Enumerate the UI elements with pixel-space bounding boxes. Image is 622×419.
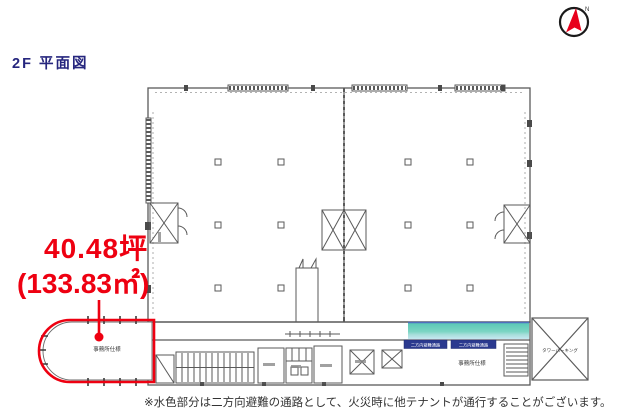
tower-parking: タワーパーキング [532, 318, 588, 380]
interior-window-lines [153, 93, 525, 317]
corridor-badge-label: 二方向避難通路 [411, 342, 441, 349]
area-tsubo-label: 40.48坪 [44, 227, 148, 267]
parking-label: タワーパーキング [542, 347, 578, 354]
evacuation-corridor-highlight [408, 323, 529, 340]
floorplan-page: 2F 平面図 N [0, 0, 622, 419]
stairs-main [176, 352, 254, 383]
right-unit-label: 事務所仕様 [458, 359, 486, 367]
area-sqm-label: (133.83㎡) [17, 262, 149, 302]
corridor-badges: 二方向避難通路 二方向避難通路 [404, 340, 496, 349]
compass-n-label: N [585, 7, 589, 13]
left-unit-label: 事務所仕様 [93, 345, 121, 353]
vestibule [296, 259, 318, 322]
corridor-badge-label: 二方向避難通路 [459, 342, 489, 349]
left-elevator-shaft [150, 203, 187, 243]
stairs-right [504, 344, 528, 376]
footnote: ※水色部分は二方向避難の通路として、火災時に他テナントが通行することがございます… [144, 394, 619, 410]
scale-ruler [285, 331, 340, 337]
wall-window-bands [146, 85, 505, 203]
office-unit-red: 事務所仕様 [39, 316, 154, 386]
floor-plan: N [0, 0, 622, 419]
north-compass-icon: N [560, 7, 589, 36]
